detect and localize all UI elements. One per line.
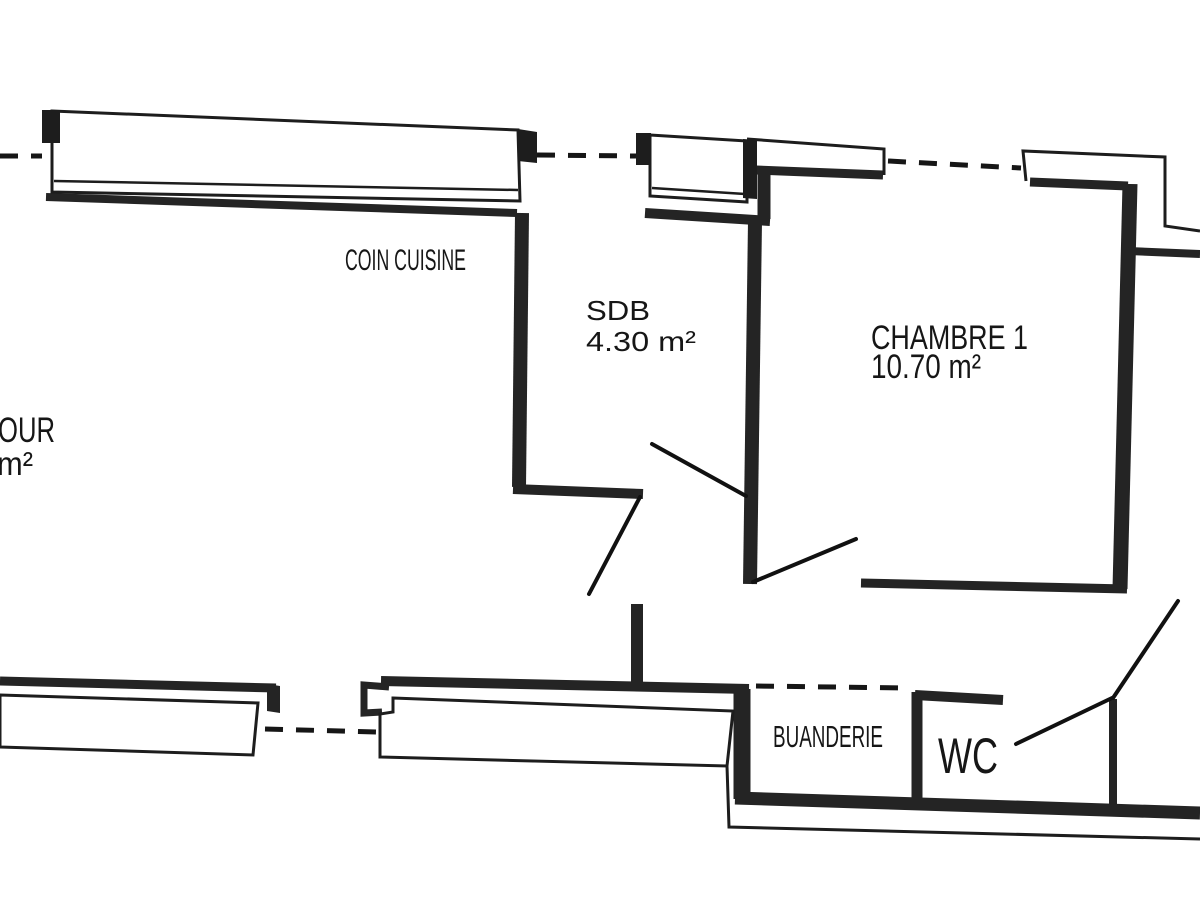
room-label-sdb: SDB: [586, 295, 650, 326]
door-swings: [589, 444, 1178, 744]
wall-chambre-right: [1120, 184, 1130, 589]
wall-chambre-window-sill-left: [756, 170, 883, 175]
wall-sdb-bottom: [513, 489, 643, 494]
window-top-left: [42, 110, 537, 201]
floor-plan-page: OUR m² COIN CUISINE SDB 4.30 m² CHAMBRE …: [0, 0, 1200, 900]
door-swing-wc: [1016, 698, 1112, 744]
room-area-sejour: m²: [0, 445, 33, 482]
wall-sdb-window-sill: [645, 213, 770, 221]
door-swing-chambre: [753, 539, 856, 582]
axis-dash-top-middle: [537, 155, 636, 156]
door-swing-entry: [1113, 601, 1178, 698]
window-top-left-pier-right: [518, 129, 537, 163]
room-area-chambre-1: 10.70 m²: [871, 348, 981, 386]
dashed-axis-lines: [0, 155, 1021, 732]
window-sdb-pier-left: [636, 133, 651, 165]
window-bottom-middle-top-bar: [381, 681, 749, 689]
window-bottom-left-body: [0, 695, 258, 755]
wall-sdb-chambre-divider: [750, 221, 755, 584]
window-sdb: [636, 133, 757, 202]
room-area-sdb: 4.30 m²: [586, 326, 696, 357]
wall-wc-top: [915, 695, 1003, 700]
window-bottom-left: [0, 681, 280, 755]
wall-right-offplan: [1128, 251, 1200, 254]
wall-bottom-exterior: [735, 798, 1200, 813]
door-swing-sdb-lower: [589, 497, 640, 594]
door-swing-sdb-upper: [652, 444, 746, 496]
room-label-coin-cuisine: COIN CUISINE: [345, 244, 466, 277]
axis-dash-buanderie: [756, 686, 908, 688]
wall-sdb-left: [519, 213, 522, 487]
window-top-left-pier-left: [42, 110, 60, 143]
room-label-buanderie: BUANDERIE: [773, 719, 883, 754]
windows: [0, 110, 1200, 839]
window-bottom-middle-body: [380, 698, 733, 766]
axis-dash-top-right: [888, 161, 1021, 168]
window-bottom-middle-bracket: [364, 685, 389, 713]
window-chambre-right-outline: [1023, 151, 1200, 231]
window-bottom-left-top-bar: [0, 681, 276, 688]
wall-chambre-bottom: [861, 583, 1127, 589]
window-bottom-left-hook: [267, 684, 280, 713]
window-sdb-pier-right: [743, 139, 757, 199]
axis-dash-bottom-left: [265, 729, 377, 732]
wall-chambre-window-sill-right: [1030, 182, 1128, 186]
floor-plan-drawing: OUR m² COIN CUISINE SDB 4.30 m² CHAMBRE …: [0, 0, 1200, 900]
room-label-wc: WC: [938, 728, 998, 784]
